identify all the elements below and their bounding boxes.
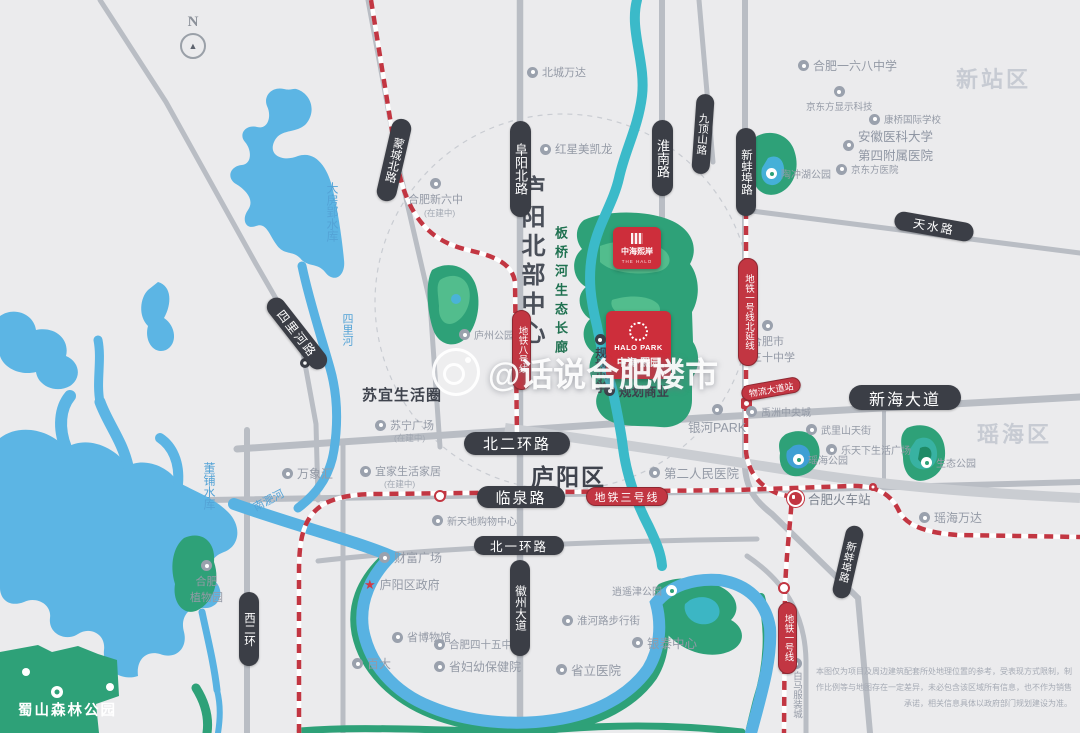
poi-yuzhou-central: 禹洲中央城 xyxy=(746,404,811,419)
poi-label: 合肥 植物园 xyxy=(190,573,223,605)
poi-shengli-hospital: 省立医院 xyxy=(556,660,621,679)
district-yaohai: 瑶海区 xyxy=(977,417,1052,449)
poi-label: 宜家生活家居 xyxy=(375,463,441,479)
label-dafangying-reservoir: 大房郢水库 xyxy=(324,182,341,242)
area-suyi-circle: 苏宜生活圈 xyxy=(362,384,442,405)
poi-ikea: 宜家生活家居 xyxy=(360,463,441,479)
hospital-icon xyxy=(843,140,854,151)
poi-baida: 百大 xyxy=(352,655,391,672)
hospital-icon xyxy=(556,664,567,675)
poi-label: 银泰中心 xyxy=(647,633,697,652)
poi-icon xyxy=(746,406,757,417)
poi-icon xyxy=(379,552,390,563)
hospital-icon xyxy=(434,661,445,672)
poi-label: 瑶海万达 xyxy=(934,509,982,526)
hospital-icon xyxy=(649,467,660,478)
poi-label: 安徽医科大学 第四附属医院 xyxy=(858,126,933,164)
park-icon xyxy=(766,168,777,179)
poi-yaohai-wanda: 瑶海万达 xyxy=(919,509,982,526)
building-icon xyxy=(631,233,643,244)
poi-label: 武里山天街 xyxy=(821,422,871,437)
disclaimer-line: 本图仅为项目及周边建筑配套所处地理位置的参考，受表现方式限制，制 xyxy=(804,664,1072,680)
poi-label: 财富广场 xyxy=(394,549,442,566)
poi-kangqiao-school: 康桥国际学校 xyxy=(869,112,941,126)
poi-xiaoyaojin-park: 逍遥津公园 xyxy=(612,583,677,598)
poi-icon xyxy=(434,639,445,650)
note-under-construction: (在建中) xyxy=(384,478,415,490)
park-icon xyxy=(459,329,470,340)
poi-label: 红星美凯龙 xyxy=(555,141,613,157)
poi-label: 逍遥津公园 xyxy=(612,583,662,598)
poi-boe-tech: 京东方显示科技 xyxy=(806,86,873,113)
project-the-halo: 中海熙岸 THE HALO xyxy=(613,227,661,269)
disclaimer-line: 承诺，相关信息具体以政府部门规划建设为准。 xyxy=(804,696,1072,712)
poi-label: 合肥新六中 xyxy=(408,191,463,207)
poi-label: 康桥国际学校 xyxy=(884,112,941,126)
label-silihe-river: 四里河 xyxy=(339,313,355,346)
poi-label: 合肥一六八中学 xyxy=(813,57,897,74)
poi-label: 第二人民医院 xyxy=(664,463,739,482)
poi-hefei-railway-station: 合肥火车站 xyxy=(787,489,871,508)
poi-yinhe-park: 银河PARK xyxy=(688,404,746,436)
poi-label: 淮河路步行街 xyxy=(577,613,640,628)
poi-icon xyxy=(806,424,817,435)
poi-luyang-government: ★ 庐阳区政府 xyxy=(364,576,440,593)
poi-icon xyxy=(834,86,845,97)
poi-icon xyxy=(430,178,441,189)
poi-icon xyxy=(360,466,371,477)
area-banqiao-corridor: 板桥河生态长廊 xyxy=(551,226,570,359)
road-label-fuyang-north: 阜阳北路 xyxy=(510,121,531,217)
poi-label: 合肥火车站 xyxy=(808,489,871,508)
poi-label: 禹洲中央城 xyxy=(761,404,811,419)
poi-label: 庐阳区政府 xyxy=(380,576,440,593)
poi-label: 北城万达 xyxy=(542,64,586,80)
metro-label-line1: 地铁一号线 xyxy=(778,602,797,674)
poi-label: 白马服装城 xyxy=(789,671,803,719)
watermark-handle: @话说合肥楼市 xyxy=(488,348,718,396)
project-halo-name-en: THE HALO xyxy=(622,259,653,264)
poi-icon xyxy=(352,658,363,669)
poi-xintiandi: 新天地购物中心 xyxy=(432,513,517,528)
poi-icon xyxy=(540,144,551,155)
poi-beicheng-wanda: 北城万达 xyxy=(527,64,586,80)
compass: N ▲ xyxy=(178,14,208,59)
poi-icon xyxy=(562,615,573,626)
poi-label: 省妇幼保健院 xyxy=(449,658,521,675)
planned-school-icon xyxy=(595,334,606,345)
label-dongpu-reservoir: 董铺水库 xyxy=(201,462,218,510)
poi-hefei-168-school: 合肥一六八中学 xyxy=(798,57,897,74)
poi-label: 苏宁广场 xyxy=(390,417,434,433)
lakes xyxy=(0,88,344,677)
poi-label: 万象汇 xyxy=(297,465,333,482)
poi-label: 新天地购物中心 xyxy=(447,513,517,528)
poi-label: 生态公园 xyxy=(936,455,976,470)
label-shushan-forest-park: 蜀山森林公园 xyxy=(18,699,117,720)
poi-suning-plaza: 苏宁广场 xyxy=(375,417,434,433)
poi-label: 省立医院 xyxy=(571,660,621,679)
poi-label: 京东方医院 xyxy=(851,162,899,176)
road-label-huainan: 淮南路 xyxy=(652,120,673,196)
poi-label: 陶冲湖公园 xyxy=(781,166,831,181)
poi-caifu-plaza: 财富广场 xyxy=(379,549,442,566)
poi-icon xyxy=(432,515,443,526)
compass-north-label: N xyxy=(178,14,208,31)
poi-huaihe-street: 淮河路步行街 xyxy=(562,613,640,628)
poi-hongxing-meikailong: 红星美凯龙 xyxy=(540,141,613,157)
poi-yaohai-park: 瑶海公园 xyxy=(793,452,848,467)
poi-wulishan: 武里山天街 xyxy=(806,422,871,437)
road-label-linquan: 临泉路 xyxy=(477,486,565,508)
park-icon xyxy=(793,454,804,465)
poi-second-hospital: 第二人民医院 xyxy=(649,463,739,482)
poi-wanxianghui: 万象汇 xyxy=(282,465,333,482)
road-label-xierhuan: 西二环 xyxy=(239,592,259,666)
district-xinzhan: 新站区 xyxy=(956,62,1031,94)
poi-label: 乐天下生活广场 xyxy=(841,442,911,457)
poi-yintai-center: 银泰中心 xyxy=(632,633,697,652)
star-icon: ★ xyxy=(364,579,376,590)
poi-label: 银河PARK xyxy=(688,417,746,436)
poi-icon xyxy=(632,637,643,648)
poi-label: 庐州公园 xyxy=(474,327,514,342)
poi-icon xyxy=(712,404,723,415)
poi-anyida-4th-hospital: 安徽医科大学 第四附属医院 xyxy=(843,126,933,164)
watermark: @话说合肥楼市 xyxy=(432,348,718,396)
road-label-xinbengbu: 新蚌埠路 xyxy=(736,128,756,216)
poi-icon xyxy=(798,60,809,71)
poi-shengtai-park: 生态公园 xyxy=(921,455,976,470)
disclaimer: 本图仅为项目及周边建筑配套所处地理位置的参考，受表现方式限制，制 作比例等与地图… xyxy=(804,664,1072,712)
park-icon xyxy=(201,560,212,571)
hospital-icon xyxy=(836,164,847,175)
road-label-beierhuan: 北二环路 xyxy=(464,432,570,455)
poi-icon xyxy=(527,67,538,78)
disclaimer-line: 作比例等与地图存在一定差异，未必包含该区域所有信息，也不作为销售 xyxy=(804,680,1072,696)
metro-label-line1-north-ext: 地铁一号线北延线 xyxy=(738,258,758,366)
note-under-construction: (在建中) xyxy=(394,432,425,444)
weibo-eye-icon xyxy=(432,348,480,396)
poi-icon xyxy=(375,420,386,431)
park-icon xyxy=(666,585,677,596)
project-halo-name-cn: 中海熙岸 xyxy=(621,246,653,257)
compass-arrow-icon: ▲ xyxy=(180,33,206,59)
metro-label-line3: 地铁三号线 xyxy=(586,487,668,506)
poi-icon xyxy=(869,114,880,125)
metro-station-icon xyxy=(787,490,804,507)
poi-icon xyxy=(282,468,293,479)
road-label-beiyihuan: 北一环路 xyxy=(474,536,564,555)
poi-boe-hospital: 京东方医院 xyxy=(836,162,899,176)
road-label-huizhou-avenue: 徽州大道 xyxy=(510,560,530,656)
poi-hefei-xinliuzhong: 合肥新六中 xyxy=(408,178,463,207)
poi-botanical-garden: 合肥 植物园 xyxy=(190,560,223,605)
poi-icon xyxy=(392,632,403,643)
poi-label: 瑶海公园 xyxy=(808,452,848,467)
poi-luzhou-park: 庐州公园 xyxy=(459,327,514,342)
poi-taochonghu-park: 陶冲湖公园 xyxy=(766,166,831,181)
poi-fuyou-hospital: 省妇幼保健院 xyxy=(434,658,521,675)
park-icon xyxy=(921,457,932,468)
poi-label: 百大 xyxy=(367,655,391,672)
map-canvas: N ▲ 新站区 瑶海区 庐阳区 庐阳北部中心 板桥河生态长廊 苏宜生活圈 大房郢… xyxy=(0,0,1080,733)
poi-icon xyxy=(762,320,773,331)
road-label-xinhai-avenue: 新海大道 xyxy=(849,385,961,410)
note-under-construction: (在建中) xyxy=(424,207,455,219)
poi-icon xyxy=(919,512,930,523)
halo-ring-icon xyxy=(629,322,648,341)
poi-label: 京东方显示科技 xyxy=(806,99,873,113)
